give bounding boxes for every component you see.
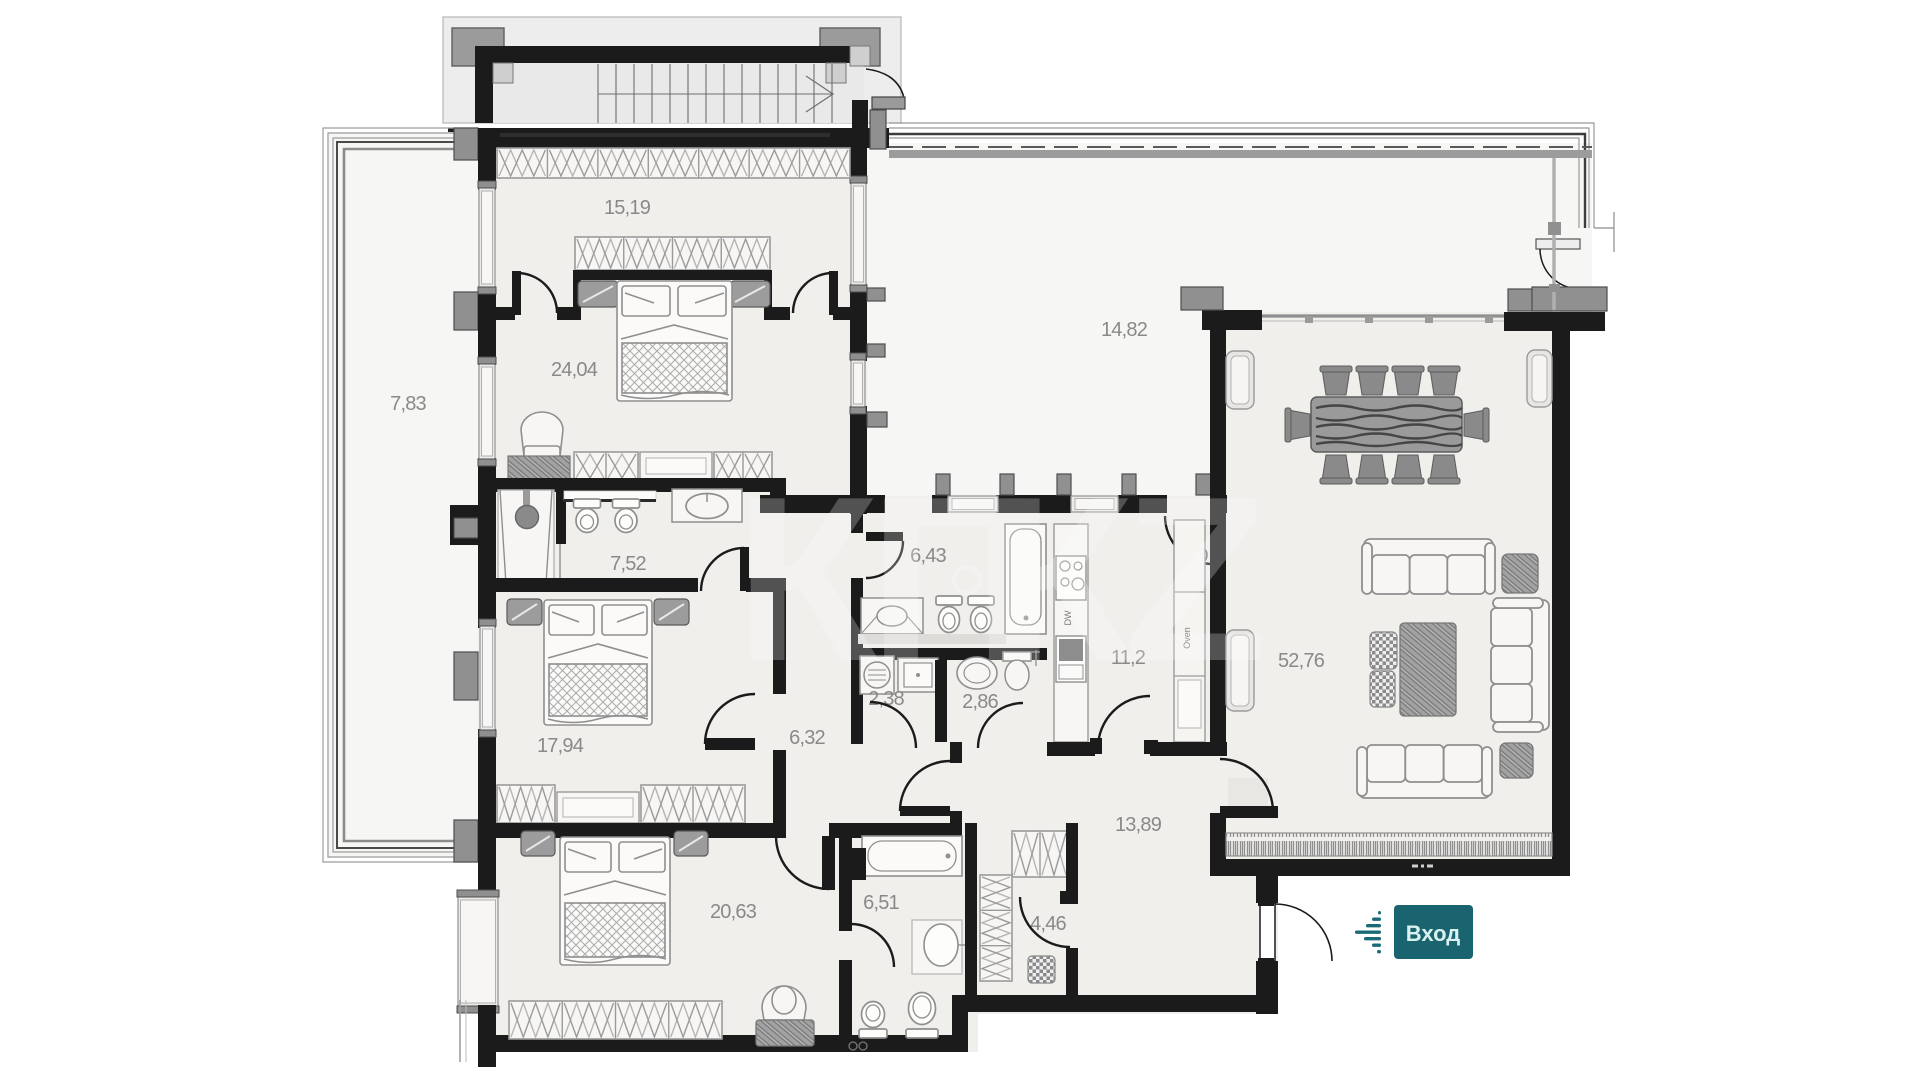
svg-text:6,32: 6,32 xyxy=(789,727,825,749)
svg-text:7,52: 7,52 xyxy=(610,553,646,575)
svg-text:24,04: 24,04 xyxy=(551,359,598,381)
svg-text:6,51: 6,51 xyxy=(863,892,899,914)
svg-text:17,94: 17,94 xyxy=(537,735,584,757)
svg-text:14,82: 14,82 xyxy=(1101,319,1148,341)
svg-text:Вход: Вход xyxy=(1406,921,1460,946)
svg-text:КП: КП xyxy=(735,447,1027,710)
svg-text:7,83: 7,83 xyxy=(390,393,426,415)
svg-text:20,63: 20,63 xyxy=(710,901,757,923)
svg-text:КZ: КZ xyxy=(990,447,1260,710)
svg-text:52,76: 52,76 xyxy=(1278,650,1325,672)
svg-text:15,19: 15,19 xyxy=(604,197,651,219)
svg-text:13,89: 13,89 xyxy=(1115,814,1162,836)
